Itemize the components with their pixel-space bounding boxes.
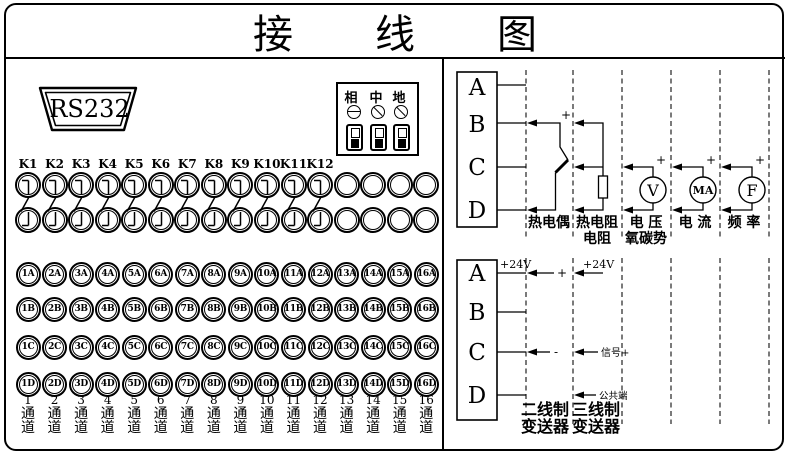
terminal-circle-label: 15C [389, 337, 410, 358]
terminal-circle: 4B [95, 297, 120, 322]
terminal-circle-label: 16A [416, 264, 437, 285]
terminal-circle: 16B [414, 297, 439, 322]
voltmeter-letter: V [646, 181, 659, 200]
relay-contact-icon [121, 172, 147, 234]
channel-char: 道 [413, 421, 439, 435]
terminal-circle-label: 7B [177, 299, 198, 320]
column-label-three-wire-transmitter: 三线制 变送器 [563, 401, 629, 435]
terminal-circle-label: 5B [124, 299, 145, 320]
terminal-circle-label: 11C [283, 337, 304, 358]
terminal-circle: 9A [228, 262, 253, 287]
terminal-circle-label: 9B [230, 299, 251, 320]
terminal-d: D [468, 383, 486, 409]
relay-contact-icon [307, 172, 333, 234]
terminal-circle: 10C [254, 335, 279, 360]
relay-contact-icon [95, 172, 121, 234]
terminal-circle: 3B [69, 297, 94, 322]
v24-label: +24V [500, 258, 532, 271]
terminal-circle: 6C [148, 335, 173, 360]
channel-char: 通 [95, 407, 121, 421]
terminal-a: A [468, 75, 486, 101]
channel-char: 通 [360, 407, 386, 421]
terminal-d: D [468, 198, 486, 224]
earth-label: 地 [392, 87, 406, 106]
channel-char: 道 [360, 421, 386, 435]
ammeter-symbol: MA + - [672, 153, 716, 224]
relay-contact-icon [227, 172, 253, 234]
terminal-circle-label: 4C [97, 337, 118, 358]
signal-plus-label: 信号+ [601, 347, 629, 359]
label-line: 氧碳势 [614, 231, 678, 247]
label-line: 变送器 [563, 418, 629, 435]
terminal-circle: 15D [387, 372, 412, 397]
channel-char: 道 [281, 421, 307, 435]
label-line: 频 率 [714, 215, 774, 231]
channel-column: 16通道 [413, 394, 439, 435]
terminal-c: C [468, 340, 486, 366]
channel-char: 通 [413, 407, 439, 421]
title-char: 图 [497, 2, 537, 60]
terminal-circle: 5A [122, 262, 147, 287]
relay-contact-icon [201, 172, 227, 234]
terminal-circle-label: 10C [256, 337, 277, 358]
channel-char: 通 [334, 407, 360, 421]
terminal-circle: 13C [334, 335, 359, 360]
terminal-c: C [468, 155, 486, 181]
channel-column: 5通道 [121, 394, 147, 435]
relay-contact-icon [281, 172, 307, 234]
channel-column: 9通道 [227, 394, 253, 435]
terminal-circle: 14D [361, 372, 386, 397]
plus-sign: + [656, 153, 666, 167]
terminal-circle-label: 12A [310, 264, 331, 285]
terminal-circle-label: 14B [363, 299, 384, 320]
three-wire-leads: +24V 信号+ 公共端 [574, 258, 629, 402]
relay-label: K5 [120, 157, 148, 170]
terminal-circle: 10A [254, 262, 279, 287]
terminal-circle: 8D [201, 372, 226, 397]
terminal-circle: 12C [308, 335, 333, 360]
terminal-circle: 13D [334, 372, 359, 397]
channel-column: 13通道 [334, 394, 360, 435]
relay-label: K2 [41, 157, 69, 170]
terminal-circle: 14B [361, 297, 386, 322]
frequency-meter-symbol: F + - [721, 153, 765, 224]
terminal-circle-label: 6C [150, 337, 171, 358]
terminal-circle: 8B [201, 297, 226, 322]
terminal-circle-label: 5D [124, 374, 145, 395]
terminal-circle: 16D [414, 372, 439, 397]
terminal-circle-label: 9D [230, 374, 251, 395]
channel-char: 道 [201, 421, 227, 435]
terminal-circle-label: 11A [283, 264, 304, 285]
terminal-circle: 3D [69, 372, 94, 397]
terminal-circle-label: 2B [44, 299, 65, 320]
terminal-circle: 5B [122, 297, 147, 322]
terminal-circle: 2A [42, 262, 67, 287]
channel-column: 11通道 [281, 394, 307, 435]
terminal-circle-label: 10A [256, 264, 277, 285]
terminal-circle-label: 12B [310, 299, 331, 320]
column-label-frequency: 频 率 [714, 215, 774, 231]
channel-char: 道 [307, 421, 333, 435]
terminal-circle-label: 1B [18, 299, 39, 320]
channel-char: 道 [68, 421, 94, 435]
relay-terminal-circle [334, 172, 360, 198]
terminal-circle: 6D [148, 372, 173, 397]
relay-terminal-circle [334, 207, 360, 233]
channel-column: 3通道 [68, 394, 94, 435]
plus-sign: + [755, 153, 765, 167]
relay-label: K4 [94, 157, 122, 170]
channel-char: 道 [334, 421, 360, 435]
channel-column: 14通道 [360, 394, 386, 435]
terminal-circle-label: 2C [44, 337, 65, 358]
terminal-circle: 3A [69, 262, 94, 287]
terminal-circle-label: 10D [256, 374, 277, 395]
terminal-circle-label: 14A [363, 264, 384, 285]
neutral-label: 中 [369, 87, 383, 106]
relay-label: K8 [200, 157, 228, 170]
minus-sign: - [554, 345, 558, 359]
terminal-circle-label: 1C [18, 337, 39, 358]
terminal-circle: 11C [281, 335, 306, 360]
terminal-circle-label: 14C [363, 337, 384, 358]
terminal-circle-label: 5C [124, 337, 145, 358]
terminal-circle-label: 11D [283, 374, 304, 395]
relay-terminal-circle [387, 207, 413, 233]
terminal-circle-label: 3B [71, 299, 92, 320]
terminal-circle: 7A [175, 262, 200, 287]
terminal-circle: 7D [175, 372, 200, 397]
channel-char: 通 [148, 407, 174, 421]
terminal-circle-label: 7C [177, 337, 198, 358]
terminal-circle-label: 2A [44, 264, 65, 285]
channel-char: 道 [387, 421, 413, 435]
channel-char: 通 [174, 407, 200, 421]
terminal-circle-label: 16C [416, 337, 437, 358]
terminal-circle-label: 4B [97, 299, 118, 320]
terminal-circle: 9D [228, 372, 253, 397]
terminal-circle-label: 16D [416, 374, 437, 395]
terminal-circle: 16C [414, 335, 439, 360]
label-line: 三线制 [563, 401, 629, 418]
screw-terminal-icon [371, 105, 385, 119]
terminal-circle-label: 1A [18, 264, 39, 285]
relay-label: K10 [253, 157, 281, 170]
relay-terminal-circle [387, 172, 413, 198]
relay-label: K11 [280, 157, 308, 170]
terminal-circle-label: 4D [97, 374, 118, 395]
channel-char: 通 [254, 407, 280, 421]
v24-label: +24V [583, 258, 615, 271]
terminal-circle: 13B [334, 297, 359, 322]
terminal-circle: 15A [387, 262, 412, 287]
terminal-circle: 7B [175, 297, 200, 322]
terminal-circle: 3C [69, 335, 94, 360]
fuse-holder-icon [393, 124, 410, 151]
terminal-circle: 12D [308, 372, 333, 397]
terminal-circle: 2D [42, 372, 67, 397]
wiring-diagram: 接 线 图 RS232 相 中 地 A B C D [0, 0, 790, 456]
relay-terminal-circle [360, 172, 386, 198]
terminal-circle: 4C [95, 335, 120, 360]
fuse-holder-icon [346, 124, 363, 151]
terminal-circle-label: 5A [124, 264, 145, 285]
channel-char: 道 [42, 421, 68, 435]
plus-sign: + [561, 108, 571, 122]
terminal-circle-label: 6B [150, 299, 171, 320]
relay-contact-icon [42, 172, 68, 234]
terminal-circle-label: 3D [71, 374, 92, 395]
terminal-circle-label: 3A [71, 264, 92, 285]
terminal-b: B [469, 300, 486, 326]
relay-contact-icon [68, 172, 94, 234]
voltmeter-symbol: V + - [623, 153, 666, 224]
channel-column: 4通道 [95, 394, 121, 435]
channel-char: 道 [148, 421, 174, 435]
terminal-circle-label: 13B [336, 299, 357, 320]
channel-column: 6通道 [148, 394, 174, 435]
terminal-circle: 15B [387, 297, 412, 322]
terminal-circle: 9C [228, 335, 253, 360]
terminal-circle: 11A [281, 262, 306, 287]
terminal-circle: 14C [361, 335, 386, 360]
channel-column: 10通道 [254, 394, 280, 435]
terminal-circle-label: 2D [44, 374, 65, 395]
terminal-b: B [469, 112, 486, 138]
channel-char: 道 [254, 421, 280, 435]
terminal-circle-label: 6A [150, 264, 171, 285]
two-wire-leads: + - [527, 266, 567, 359]
thermocouple-symbol: + - [527, 108, 571, 224]
terminal-circle-label: 1D [18, 374, 39, 395]
terminal-circle-label: 6D [150, 374, 171, 395]
channel-char: 通 [15, 407, 41, 421]
terminal-circle-label: 13D [336, 374, 357, 395]
rtd-symbol [574, 120, 608, 214]
terminal-circle: 1D [16, 372, 41, 397]
channel-char: 通 [121, 407, 147, 421]
channel-char: 道 [95, 421, 121, 435]
plus-sign: + [706, 153, 716, 167]
diagram-title: 接 线 图 [0, 8, 790, 54]
terminal-circle-label: 8D [203, 374, 224, 395]
terminal-circle: 13A [334, 262, 359, 287]
channel-char: 通 [201, 407, 227, 421]
terminal-a: A [468, 261, 486, 287]
channel-char: 道 [174, 421, 200, 435]
terminal-circle: 2C [42, 335, 67, 360]
terminal-circle-label: 7A [177, 264, 198, 285]
channel-column: 7通道 [174, 394, 200, 435]
power-terminal-box: 相 中 地 [336, 82, 419, 156]
relay-label: K3 [67, 157, 95, 170]
channel-char: 道 [15, 421, 41, 435]
relay-contact-icon [254, 172, 280, 234]
terminal-circle-label: 3C [71, 337, 92, 358]
terminal-circle-label: 15B [389, 299, 410, 320]
channel-char: 道 [121, 421, 147, 435]
relay-contact-icon [15, 172, 41, 234]
terminal-circle-label: 8B [203, 299, 224, 320]
relay-contact-icon [148, 172, 174, 234]
channel-column: 8通道 [201, 394, 227, 435]
terminal-circle-label: 15D [389, 374, 410, 395]
terminal-circle: 8C [201, 335, 226, 360]
relay-label: K12 [306, 157, 334, 170]
terminal-circle: 16A [414, 262, 439, 287]
terminal-circle-label: 13A [336, 264, 357, 285]
terminal-circle-label: 11B [283, 299, 304, 320]
terminal-circle-label: 7D [177, 374, 198, 395]
terminal-circle: 2B [42, 297, 67, 322]
terminal-circle: 6B [148, 297, 173, 322]
terminal-circle: 7C [175, 335, 200, 360]
terminal-circle: 5C [122, 335, 147, 360]
terminal-circle-label: 4A [97, 264, 118, 285]
terminal-circle-label: 8A [203, 264, 224, 285]
relay-label: K7 [173, 157, 201, 170]
title-char: 线 [375, 2, 415, 60]
channel-char: 通 [68, 407, 94, 421]
rs232-label: RS232 [32, 85, 147, 135]
terminal-circle-label: 14D [363, 374, 384, 395]
terminal-circle: 1C [16, 335, 41, 360]
channel-char: 通 [42, 407, 68, 421]
terminal-circle: 10B [254, 297, 279, 322]
channel-column: 12通道 [307, 394, 333, 435]
plus-sign: + [557, 266, 567, 280]
terminal-circle: 4A [95, 262, 120, 287]
terminal-circle: 11D [281, 372, 306, 397]
terminal-circle: 1A [16, 262, 41, 287]
terminal-circle-label: 15A [389, 264, 410, 285]
relay-label: K9 [226, 157, 254, 170]
channel-column: 2通道 [42, 394, 68, 435]
terminal-circle-label: 16B [416, 299, 437, 320]
terminal-circle-label: 12D [310, 374, 331, 395]
title-char: 接 [253, 2, 293, 60]
relay-terminal-circle [360, 207, 386, 233]
terminal-circle-label: 10B [256, 299, 277, 320]
frequency-letter: F [746, 181, 757, 200]
terminal-circle: 11B [281, 297, 306, 322]
phase-label: 相 [344, 87, 358, 106]
screw-terminal-icon [394, 105, 408, 119]
fuse-holder-icon [370, 124, 387, 151]
terminal-circle-label: 9A [230, 264, 251, 285]
title-divider [5, 57, 785, 59]
terminal-circle: 1B [16, 297, 41, 322]
rs232-connector: RS232 [32, 85, 147, 135]
channel-char: 通 [281, 407, 307, 421]
terminal-circle: 4D [95, 372, 120, 397]
terminal-circle-label: 9C [230, 337, 251, 358]
terminal-circle: 6A [148, 262, 173, 287]
relay-contact-icon [174, 172, 200, 234]
channel-char: 通 [307, 407, 333, 421]
terminal-circle: 9B [228, 297, 253, 322]
channel-char: 通 [387, 407, 413, 421]
terminal-circle: 8A [201, 262, 226, 287]
terminal-circle-label: 8C [203, 337, 224, 358]
terminal-circle: 15C [387, 335, 412, 360]
terminal-circle: 10D [254, 372, 279, 397]
terminal-circle: 12B [308, 297, 333, 322]
relay-label: K6 [147, 157, 175, 170]
ammeter-letters: MA [693, 184, 714, 197]
channel-char: 通 [227, 407, 253, 421]
channel-column: 1通道 [15, 394, 41, 435]
screw-terminal-icon [347, 105, 361, 119]
terminal-circle-label: 13C [336, 337, 357, 358]
terminal-circle: 12A [308, 262, 333, 287]
channel-char: 道 [227, 421, 253, 435]
resistor-icon [599, 176, 608, 198]
relay-label: K1 [14, 157, 42, 170]
channel-column: 15通道 [387, 394, 413, 435]
terminal-circle: 14A [361, 262, 386, 287]
terminal-circle-label: 12C [310, 337, 331, 358]
terminal-circle: 5D [122, 372, 147, 397]
